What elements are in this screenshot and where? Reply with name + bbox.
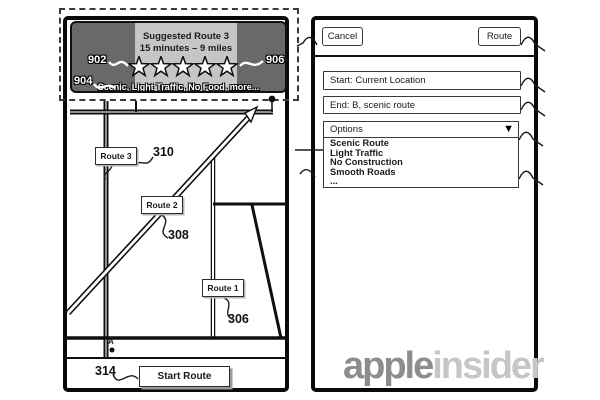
ref-306: 306 <box>228 312 249 326</box>
star-icon <box>128 56 150 78</box>
star-icon <box>216 56 238 78</box>
start-route-button[interactable]: Start Route <box>139 366 230 387</box>
star-icon <box>194 56 216 78</box>
options-list: Scenic Route Light Traffic No Constructi… <box>323 138 519 188</box>
end-location-field[interactable]: End: B, scenic route <box>323 96 521 114</box>
route-3-label[interactable]: Route 3 <box>95 147 137 165</box>
start-location-field[interactable]: Start: Current Location <box>323 71 521 90</box>
route-2-label[interactable]: Route 2 <box>141 196 183 214</box>
suggested-route-banner: Suggested Route 3 15 minutes – 9 miles 9… <box>70 21 287 93</box>
appleinsider-watermark: appleinsider <box>343 347 543 385</box>
start-point-label: A <box>108 337 114 346</box>
cancel-button[interactable]: Cancel <box>322 27 363 46</box>
star-icon <box>172 56 194 78</box>
start-route-label: Start Route <box>158 371 212 382</box>
option-smooth-roads[interactable]: Smooth Roads <box>330 168 518 178</box>
option-ellipsis[interactable]: ... <box>330 177 518 187</box>
chevron-down-icon[interactable]: ▼ <box>503 124 514 135</box>
route-label: Route <box>487 31 512 42</box>
route-button[interactable]: Route <box>478 27 521 46</box>
start-field-value: Start: Current Location <box>330 75 426 86</box>
ref-906: 906 <box>266 54 284 66</box>
panel-toolbar-divider <box>313 55 536 58</box>
rating-stars <box>128 56 238 78</box>
options-label: Options <box>330 124 363 135</box>
ref-308: 308 <box>168 228 189 242</box>
banner-title: Suggested Route 3 <box>127 31 245 42</box>
ref-314: 314 <box>95 364 116 378</box>
route-3-text: Route 3 <box>100 151 131 161</box>
banner-subtitle: 15 minutes – 9 miles <box>127 43 245 54</box>
route-2-text: Route 2 <box>146 200 177 210</box>
end-field-value: End: B, scenic route <box>330 100 415 111</box>
star-icon <box>150 56 172 78</box>
route-1-label[interactable]: Route 1 <box>202 279 244 297</box>
watermark-apple: apple <box>343 345 432 387</box>
cancel-label: Cancel <box>328 31 358 42</box>
ref-310: 310 <box>153 145 174 159</box>
ref-902: 902 <box>88 54 106 66</box>
route-1-text: Route 1 <box>207 283 238 293</box>
route-attributes-prefix: Scenic, Light Traffic, No Food, <box>98 82 230 92</box>
more-link[interactable]: more... <box>230 82 260 92</box>
options-dropdown[interactable]: Options ▼ <box>323 121 519 138</box>
watermark-insider: insider <box>432 345 543 387</box>
route-attributes-text: Scenic, Light Traffic, No Food, more... <box>72 82 285 92</box>
